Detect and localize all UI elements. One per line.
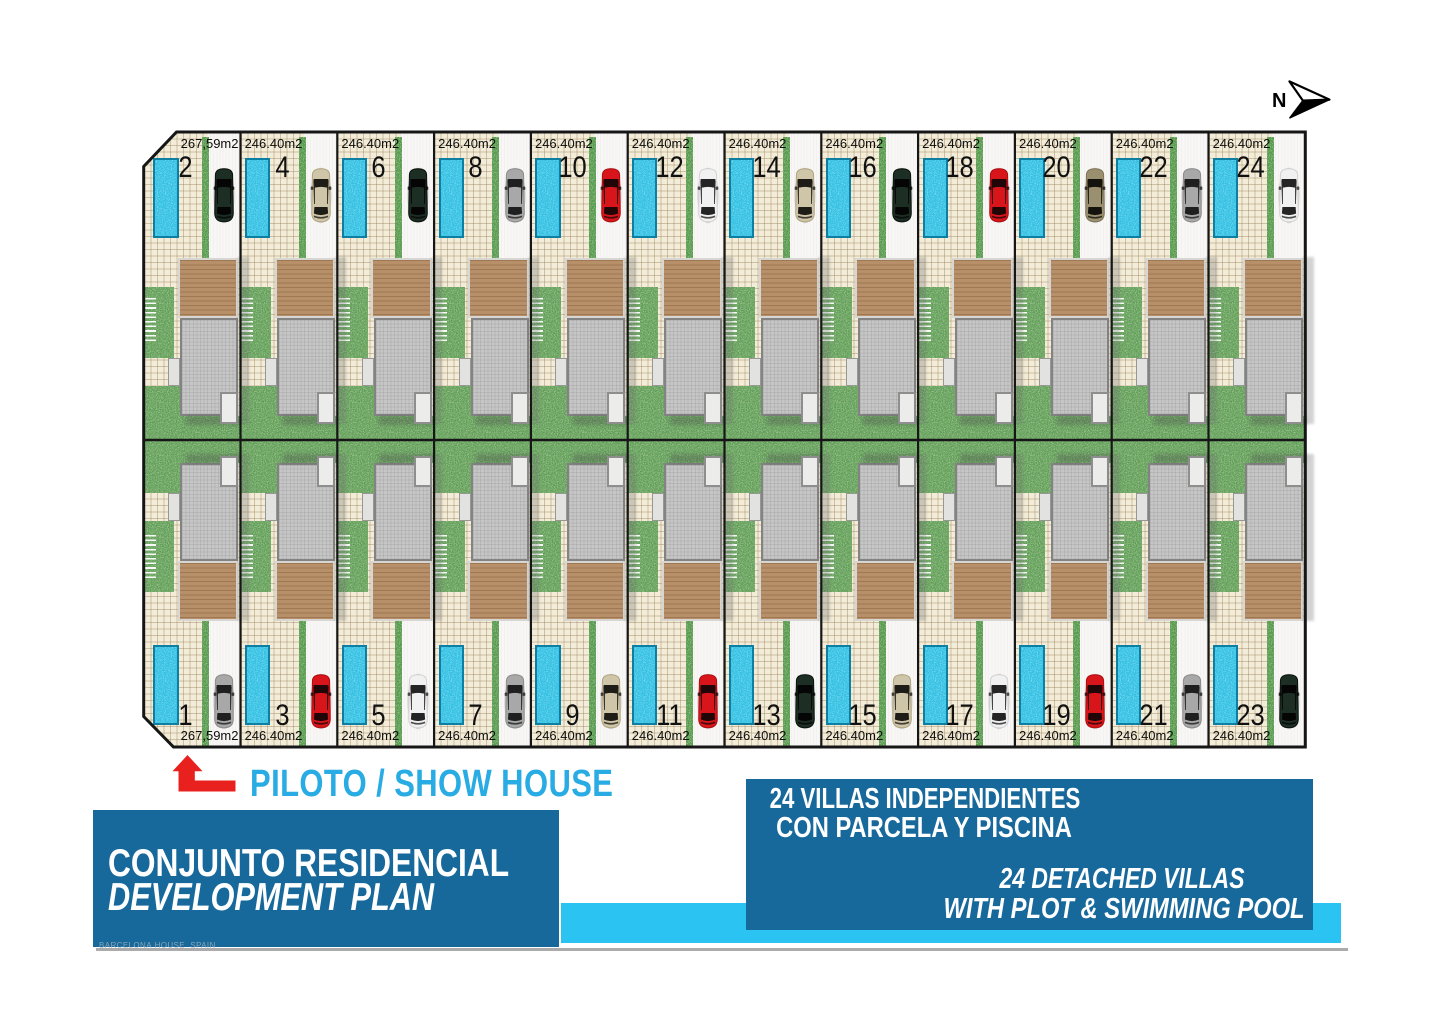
svg-text:N: N [1272,90,1286,112]
